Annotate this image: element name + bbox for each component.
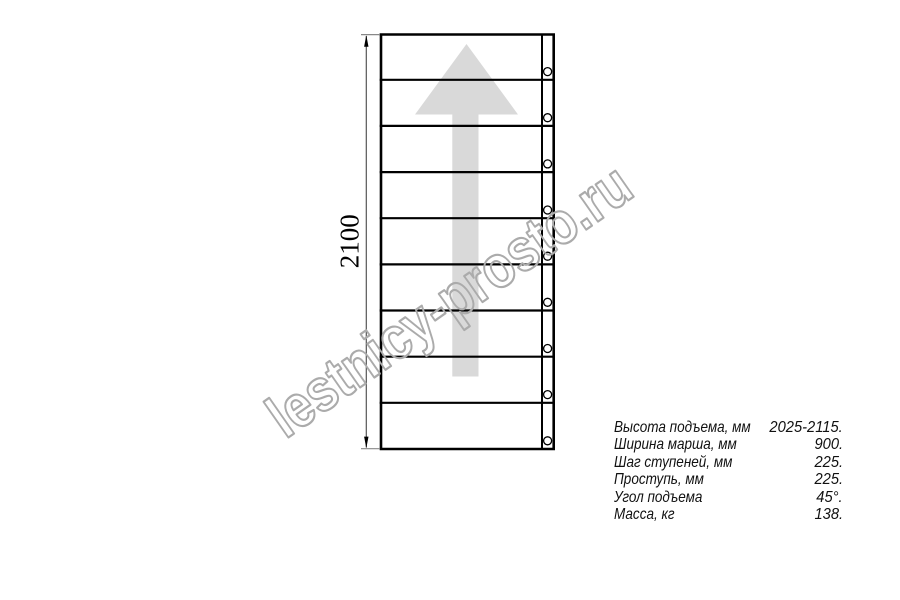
svg-text:lestnicy-prosto.ru: lestnicy-prosto.ru [255,150,644,450]
svg-text:2100: 2100 [334,214,364,268]
